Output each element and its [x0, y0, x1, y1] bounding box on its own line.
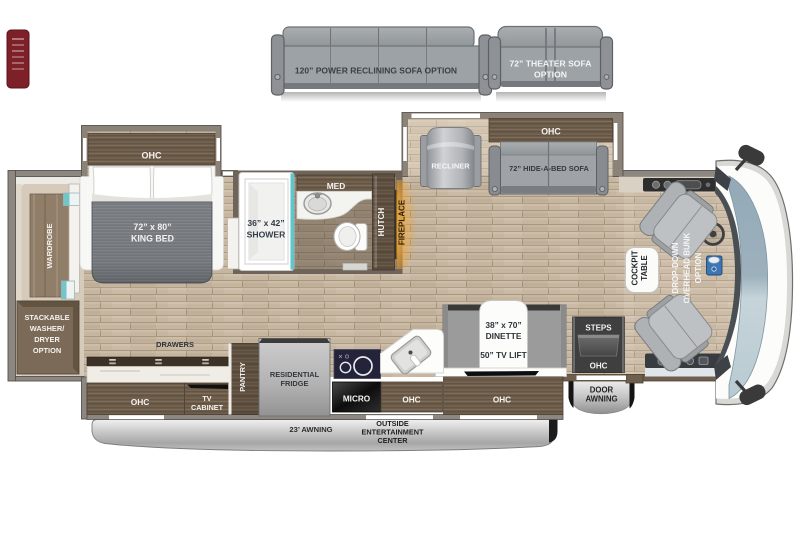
svg-text:MICRO: MICRO: [343, 395, 371, 404]
svg-text:OHC: OHC: [590, 362, 608, 371]
svg-text:OHC: OHC: [493, 396, 511, 405]
svg-text:AWNING: AWNING: [585, 395, 617, 404]
svg-text:RESIDENTIAL: RESIDENTIAL: [270, 370, 320, 379]
svg-text:TABLE: TABLE: [640, 255, 649, 280]
svg-text:OHC: OHC: [541, 127, 561, 137]
svg-text:OPTION: OPTION: [694, 252, 703, 283]
svg-text:72” THEATER SOFA: 72” THEATER SOFA: [510, 59, 592, 69]
svg-text:OPTION: OPTION: [534, 70, 567, 80]
svg-text:PANTRY: PANTRY: [238, 362, 247, 392]
svg-text:WARDROBE: WARDROBE: [45, 223, 54, 268]
svg-text:DOOR: DOOR: [590, 386, 614, 395]
svg-text:WASHER/: WASHER/: [30, 324, 65, 333]
svg-text:72” HIDE-A-BED SOFA: 72” HIDE-A-BED SOFA: [509, 164, 589, 173]
svg-text:CABINET: CABINET: [191, 403, 224, 412]
svg-text:DRYER: DRYER: [34, 335, 60, 344]
svg-text:STACKABLE: STACKABLE: [24, 313, 69, 322]
svg-text:RECLINER: RECLINER: [431, 162, 470, 171]
svg-text:KING BED: KING BED: [131, 234, 174, 244]
svg-text:72” x 80”: 72” x 80”: [133, 222, 171, 232]
svg-text:23’ AWNING: 23’ AWNING: [289, 425, 332, 434]
svg-text:COCKPIT: COCKPIT: [631, 250, 640, 285]
svg-text:OPTION: OPTION: [33, 346, 61, 355]
svg-text:FRIDGE: FRIDGE: [281, 379, 309, 388]
svg-text:MED: MED: [327, 181, 346, 191]
svg-text:DRAWERS: DRAWERS: [156, 340, 194, 349]
svg-text:FIREPLACE: FIREPLACE: [398, 199, 407, 245]
svg-text:SHOWER: SHOWER: [247, 230, 286, 240]
svg-text:120” POWER RECLINING SOFA OPTI: 120” POWER RECLINING SOFA OPTION: [295, 66, 457, 76]
svg-text:TV: TV: [202, 394, 211, 403]
svg-text:50” TV LIFT: 50” TV LIFT: [480, 350, 527, 360]
svg-text:DROP-DOWN: DROP-DOWN: [671, 242, 680, 293]
svg-text:OVERHEAD BUNK: OVERHEAD BUNK: [683, 232, 692, 303]
svg-text:DINETTE: DINETTE: [486, 331, 522, 341]
svg-text:HUTCH: HUTCH: [377, 208, 386, 237]
svg-text:36” x 42”: 36” x 42”: [247, 218, 284, 228]
svg-text:OHC: OHC: [142, 151, 163, 161]
svg-text:OHC: OHC: [131, 397, 150, 407]
svg-text:STEPS: STEPS: [585, 324, 612, 333]
svg-text:38” x 70”: 38” x 70”: [485, 320, 521, 330]
svg-text:OHC: OHC: [402, 396, 420, 405]
svg-text:CENTER: CENTER: [378, 436, 409, 445]
